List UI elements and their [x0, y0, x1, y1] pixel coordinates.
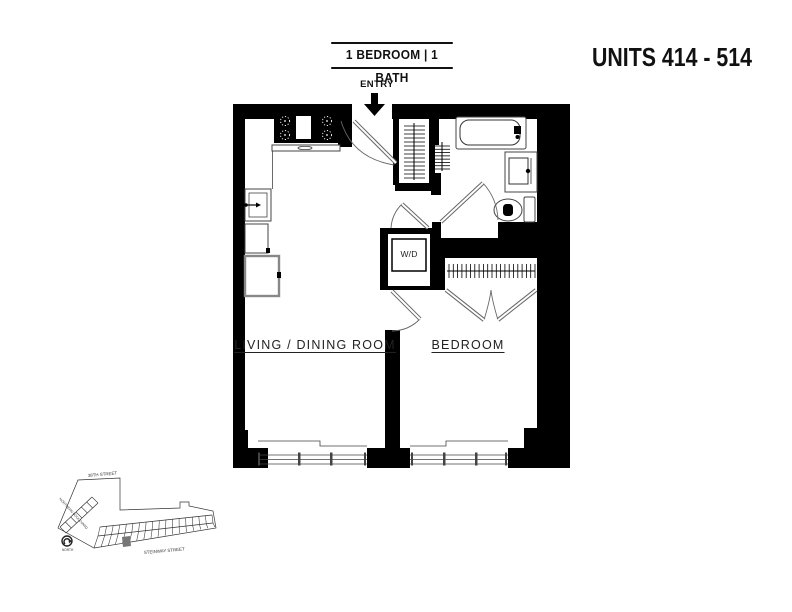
entry-label: ENTRY [350, 79, 404, 90]
site-map: 38TH STREET STEINWAY STREET NORTHERN BOU… [58, 470, 216, 555]
bedroom-closet [446, 264, 536, 320]
street-label-steinway: STEINWAY STREET [144, 546, 185, 555]
vanity-sink [505, 152, 537, 192]
street-label-38th: 38TH STREET [88, 470, 118, 478]
coat-closet [404, 123, 425, 180]
entry-arrow-icon [364, 93, 385, 116]
closet-double-doors [446, 290, 536, 320]
street-label-northern: NORTHERN BOULEVARD [58, 497, 89, 530]
page-title: UNITS 414 - 514 [592, 42, 752, 73]
living-dining-room-label: LIVING / DINING ROOM [215, 338, 415, 352]
north-label: NORTH [62, 548, 74, 552]
floor-plan-sheet: 38TH STREET STEINWAY STREET NORTHERN BOU… [0, 0, 792, 612]
north-arrow-icon [62, 536, 72, 546]
linen-closet [434, 142, 450, 171]
dishwasher [245, 224, 270, 253]
kitchen-sink [244, 189, 271, 221]
washer-dryer-closet [388, 204, 430, 286]
toilet [494, 197, 535, 222]
floor-plan-drawing: 38TH STREET STEINWAY STREET NORTHERN BOU… [0, 0, 792, 612]
bedroom-door [392, 291, 420, 331]
bathtub [456, 117, 526, 149]
kitchen-range [272, 112, 340, 151]
unit-location-marker [122, 536, 131, 547]
refrigerator [245, 256, 281, 296]
bedroom-label: BEDROOM [398, 338, 538, 352]
bathroom-door [441, 183, 498, 222]
washer-dryer-label: W/D [392, 249, 426, 259]
unit-type-badge: 1 BEDROOM | 1 BATH [331, 42, 453, 69]
